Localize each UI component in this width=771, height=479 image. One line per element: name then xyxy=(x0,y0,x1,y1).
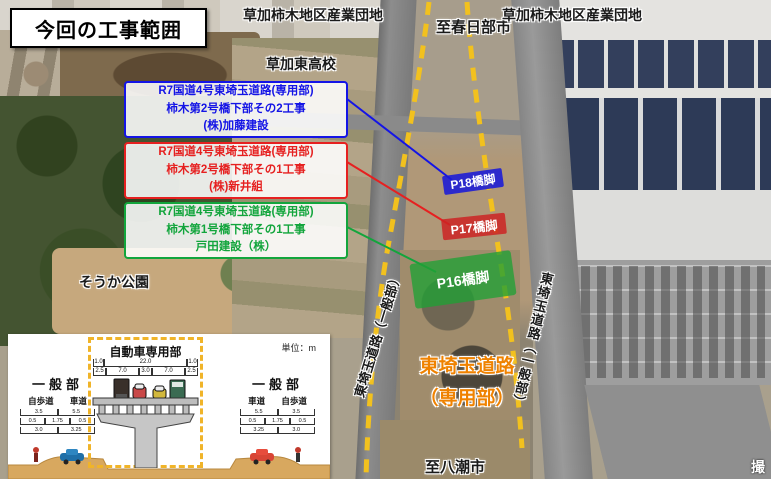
photo-warehouse-wall xyxy=(565,190,771,260)
dim: 3.25 xyxy=(240,427,278,434)
label-soka-higashi-highschool: 草加東高校 xyxy=(266,54,336,74)
dim: 1.75 xyxy=(265,418,290,425)
label-road-exclusive-line1: 東埼玉道路 xyxy=(408,351,526,383)
label-industrial-park-right: 草加柿木地区産業団地 xyxy=(502,5,642,25)
dim: 22.0 xyxy=(104,359,187,367)
left-roadway-label: 車道 xyxy=(70,395,87,407)
motorway-section-box: 自動車専用部 1.0 22.0 1.0 2.5 7.0 3.0 7.0 2.5 xyxy=(88,337,203,468)
unit-label: 単位：m xyxy=(282,341,317,354)
dim: 3.5 xyxy=(20,409,58,416)
dim: 1.0 xyxy=(93,359,104,367)
callout-line: (株)加藤建設 xyxy=(203,118,268,136)
photo-solar-roof-top xyxy=(548,40,771,88)
truck-dark-icon xyxy=(114,379,129,398)
callout-line: 柿木第2号橋下部その1工事 xyxy=(166,162,305,180)
cross-section-panel: 単位：m 一般部 自歩道 xyxy=(8,334,330,479)
dim: 3.0 xyxy=(278,427,316,434)
general-section-right-title: 一般部 xyxy=(240,374,315,393)
dim: 1.75 xyxy=(45,418,70,425)
pedestrian-right-icon xyxy=(295,447,301,462)
left-sidewalk-label: 自歩道 xyxy=(28,395,54,407)
page-title: 今回の工事範囲 xyxy=(10,8,207,48)
car-yellow-icon xyxy=(153,386,166,398)
dim: 1.0 xyxy=(187,359,198,367)
label-road-exclusive-line2: （専用部） xyxy=(408,383,526,415)
label-road-exclusive: 東埼玉道路 （専用部） xyxy=(408,351,526,416)
bridge-pier xyxy=(97,414,194,468)
photo-road-bottom-right xyxy=(584,385,771,479)
label-to-yashio: 至八潮市 xyxy=(425,456,485,477)
callout-line: 柿木第2号橋下部その2工事 xyxy=(166,101,305,119)
dim: 5.5 xyxy=(240,409,278,416)
annotated-aerial-map: 草加柿木地区産業団地 至春日部市 草加柿木地区産業団地 草加東高校 そうか公園 … xyxy=(0,0,771,479)
motorway-section-title: 自動車専用部 xyxy=(91,343,200,360)
callout-p18-kato-kensetsu: R7国道4号東埼玉道路(専用部) 柿木第2号橋下部その2工事 (株)加藤建設 xyxy=(124,81,348,138)
callout-line: 戸田建設（株） xyxy=(196,239,277,257)
dim: 7.0 xyxy=(152,368,185,376)
dim: 3.0 xyxy=(139,368,152,376)
callout-p17-araigumi: R7国道4号東埼玉道路(専用部) 柿木第2号橋下部その1工事 (株)新井組 xyxy=(124,142,348,199)
dim: 3.5 xyxy=(278,409,316,416)
bridge-girders xyxy=(99,405,189,414)
label-to-kasukabe: 至春日部市 xyxy=(436,16,511,37)
pedestrian-left-icon xyxy=(33,447,39,462)
callout-line: (株)新井組 xyxy=(209,179,263,197)
label-photo-credit: 撮 xyxy=(751,457,765,477)
label-industrial-park-left: 草加柿木地区産業団地 xyxy=(243,5,383,25)
general-section-right: 一般部 車道 自歩道 5.5 3.5 0.5 1.75 0.5 3.25 3.0 xyxy=(240,374,315,434)
dim: 0.5 xyxy=(20,418,45,425)
dim: 2.5 xyxy=(93,368,106,376)
truck-green-icon xyxy=(170,380,185,398)
dim: 0.5 xyxy=(240,418,265,425)
general-section-left: 一般部 自歩道 車道 3.5 5.5 0.5 1.75 0.5 3.0 3.25 xyxy=(20,374,95,434)
callout-line: R7国道4号東埼玉道路(専用部) xyxy=(158,144,313,162)
photo-solar-roof-main xyxy=(565,98,771,190)
callout-line: R7国道4号東埼玉道路(専用部) xyxy=(158,204,313,222)
dim: 3.0 xyxy=(20,427,58,434)
dim: 2.5 xyxy=(185,368,198,376)
callout-line: R7国道4号東埼玉道路(専用部) xyxy=(158,83,313,101)
right-sidewalk-label: 自歩道 xyxy=(281,395,307,407)
car-red-icon xyxy=(133,384,146,398)
callout-p16-toda-kensetsu: R7国道4号東埼玉道路(専用部) 柿木第1号橋下部その1工事 戸田建設（株） xyxy=(124,202,348,259)
right-roadway-label: 車道 xyxy=(248,395,265,407)
bridge-illustration xyxy=(91,378,200,468)
bridge-deck xyxy=(93,398,198,405)
photo-parked-cars xyxy=(565,266,765,378)
dim: 0.5 xyxy=(290,418,315,425)
label-soka-park: そうか公園 xyxy=(79,272,149,292)
general-section-left-title: 一般部 xyxy=(20,374,95,393)
dim: 7.0 xyxy=(106,368,139,376)
callout-line: 柿木第1号橋下部その1工事 xyxy=(166,222,305,240)
